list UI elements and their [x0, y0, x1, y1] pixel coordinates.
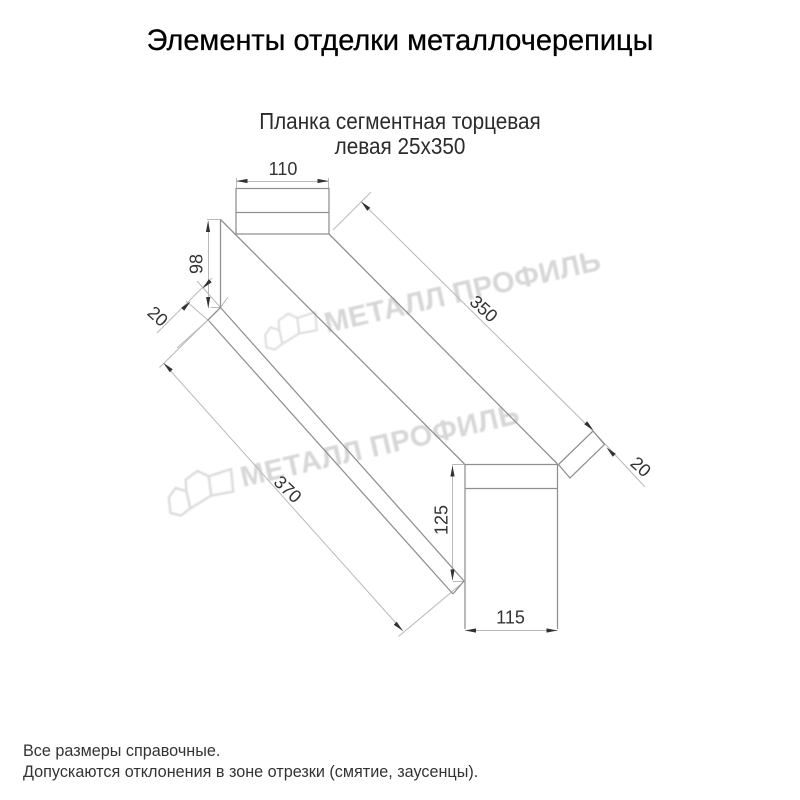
- svg-text:115: 115: [496, 608, 525, 628]
- svg-text:110: 110: [269, 159, 298, 179]
- svg-text:125: 125: [432, 505, 452, 535]
- svg-text:МЕТАЛЛ ПРОФИЛЬ: МЕТАЛЛ ПРОФИЛЬ: [321, 245, 604, 340]
- svg-text:20: 20: [627, 453, 655, 481]
- svg-text:20: 20: [144, 302, 172, 330]
- svg-text:98: 98: [187, 254, 207, 274]
